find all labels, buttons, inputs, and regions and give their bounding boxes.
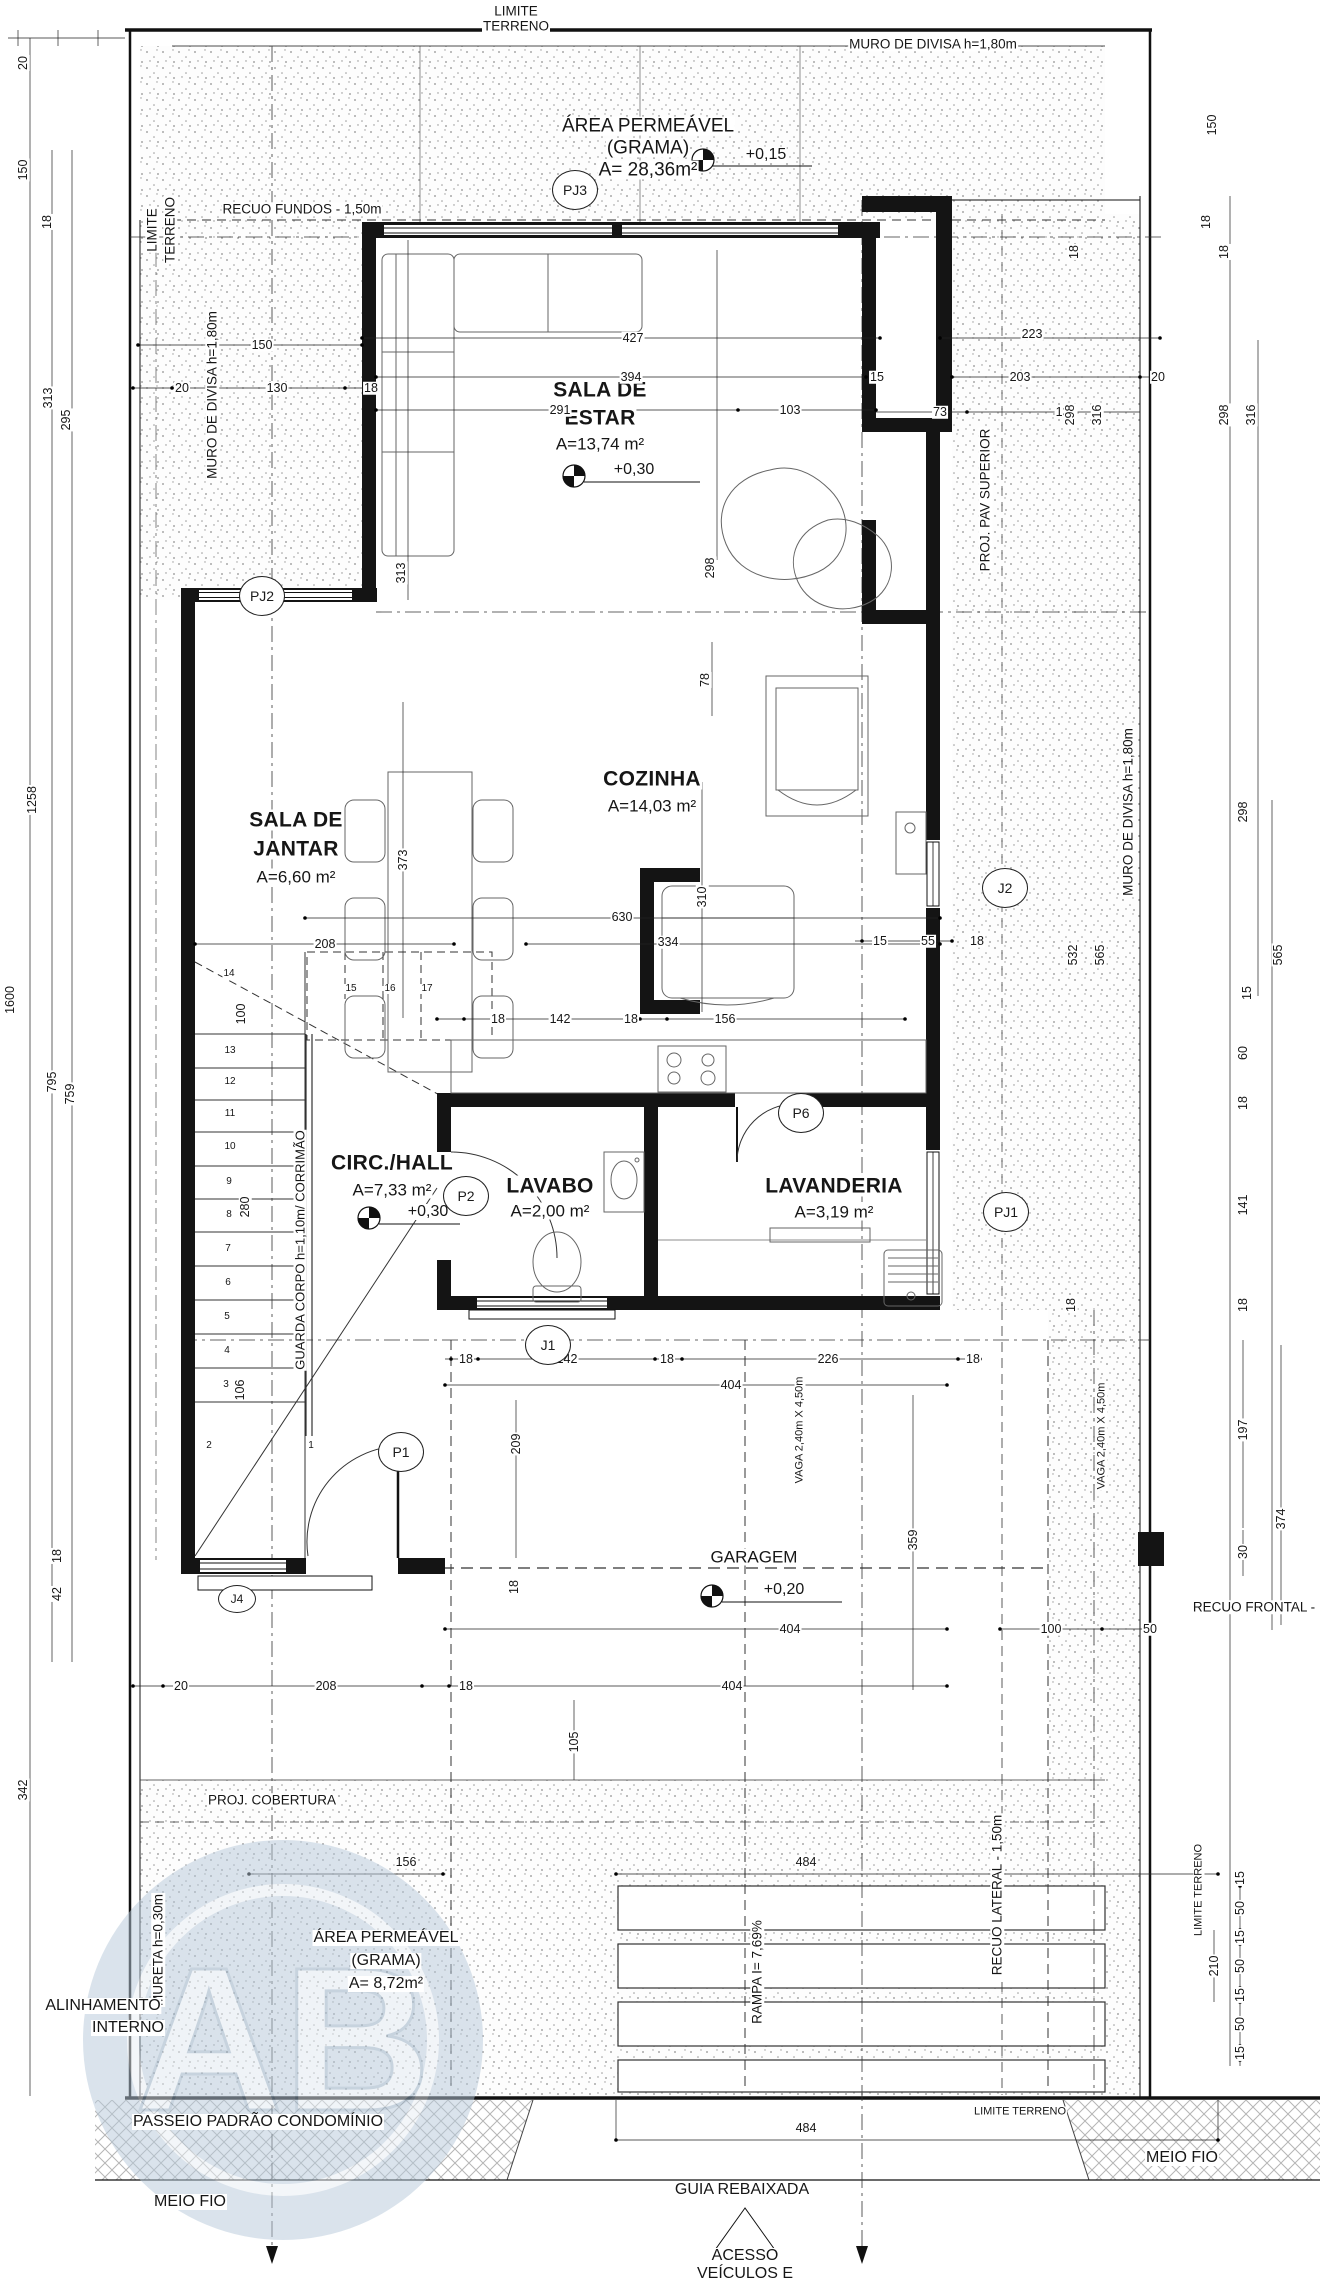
- room-sala-jantar: SALA DE: [248, 810, 344, 831]
- dim-label: 6: [224, 1278, 232, 1288]
- dim-label: 50: [1234, 1958, 1247, 1974]
- dim-label: 150: [1206, 114, 1219, 137]
- dim-label: 359: [907, 1529, 920, 1552]
- ramp-note: RAMPA I= 7,69%: [750, 1919, 764, 2025]
- dim-label: 100: [235, 1003, 248, 1026]
- curb-note: MEIO FIO: [1145, 2150, 1219, 2166]
- opening-tag-j1: J1: [525, 1325, 571, 1365]
- access-note: VEÍCULOS E: [696, 2266, 794, 2282]
- dim-label: 313: [42, 387, 55, 410]
- annotation-label: (GRAMA): [350, 1953, 421, 1969]
- dim-label: 141: [1237, 1194, 1250, 1217]
- dim-label: 150: [17, 159, 30, 182]
- opening-tag-j4: J4: [218, 1585, 256, 1613]
- guardrail-note: GUARDA CORPO h=1,10m/ CORRIMÃO: [294, 1129, 307, 1370]
- level-value: +0,15: [745, 147, 787, 163]
- dim-label: 18: [1068, 244, 1081, 260]
- room-area: A=6,60 m²: [256, 869, 337, 886]
- opening-tag-j2: J2: [982, 868, 1028, 908]
- dim-label: 18: [623, 1013, 639, 1026]
- dim-label: 18: [508, 1579, 521, 1595]
- dim-label: 295: [60, 409, 73, 432]
- room-cozinha: COZINHA: [602, 769, 702, 790]
- room-area: A=2,00 m²: [510, 1203, 591, 1220]
- dim-label: 156: [714, 1013, 737, 1026]
- wall-note: MURO DE DIVISA h=1,80m: [1121, 727, 1135, 897]
- opening-tag-p2: P2: [443, 1176, 489, 1216]
- dim-label: 197: [1237, 1419, 1250, 1442]
- level-value: +0,30: [407, 1204, 449, 1220]
- opening-tag-pj2: PJ2: [239, 576, 285, 616]
- dim-label: 4: [223, 1346, 231, 1356]
- dim-label: 42: [51, 1586, 64, 1602]
- dim-label: 373: [397, 849, 410, 872]
- dim-label: 15: [872, 935, 888, 948]
- dim-label: 50: [1234, 2016, 1247, 2032]
- dim-label: 18: [363, 382, 379, 395]
- dim-label: 208: [315, 1680, 338, 1693]
- dim-label: 100: [1040, 1623, 1063, 1636]
- dim-label: 310: [696, 886, 709, 909]
- opening-tag-p1: P1: [378, 1432, 424, 1472]
- parking-space-note: VAGA 2,40m X 4,50m: [1097, 1382, 1108, 1491]
- dim-label: 73: [932, 406, 948, 419]
- dim-label: 15: [1234, 2045, 1247, 2061]
- level-value: +0,20: [763, 1582, 805, 1598]
- dim-label: 20: [17, 55, 30, 71]
- annotation-label: LIMITE: [145, 207, 159, 253]
- dim-label: 103: [779, 404, 802, 417]
- dim-label: 18: [458, 1353, 474, 1366]
- room-garagem: GARAGEM: [710, 1549, 799, 1566]
- dim-label: 298: [704, 557, 717, 580]
- dim-label: 565: [1094, 944, 1107, 967]
- room-area: A=7,33 m²: [352, 1182, 433, 1199]
- dim-label: 17: [420, 984, 433, 994]
- dim-label: 7: [224, 1244, 232, 1254]
- dim-label: 156: [395, 1856, 418, 1869]
- upper-floor-projection-note: PROJ. PAV SUPERIOR: [978, 428, 992, 573]
- dim-label: 106: [234, 1379, 247, 1402]
- dim-label: 18: [1200, 214, 1213, 230]
- site-limit-top: TERRENO: [482, 19, 550, 33]
- annotation-label: A= 8,72m²: [348, 1976, 424, 1992]
- dim-label: 484: [795, 2122, 818, 2135]
- dim-label: 11: [224, 1109, 236, 1119]
- dim-label: 532: [1067, 944, 1080, 967]
- lowered-curb-note: GUIA REBAIXADA: [674, 2182, 810, 2198]
- dim-label: 60: [1237, 1045, 1250, 1061]
- permeable-area-title: ÁREA PERMEÁVEL: [561, 117, 735, 136]
- dim-label: 210: [1208, 1955, 1221, 1978]
- dim-label: 18: [1237, 1095, 1250, 1111]
- dim-label: 427: [622, 332, 645, 345]
- floor-plan-drawing: AB LIMITETERRENOMURO DE DIVISA h=1,80mÁR…: [0, 0, 1320, 2284]
- dim-label: 298: [1218, 404, 1231, 427]
- dim-label: 20: [173, 1680, 189, 1693]
- opening-tag-p6: P6: [778, 1093, 824, 1133]
- dim-label: 404: [779, 1623, 802, 1636]
- dim-label: 30: [1237, 1544, 1250, 1560]
- dim-label: 18: [490, 1013, 506, 1026]
- setback-note: RECUO LATERAL - 1,50m: [990, 1814, 1004, 1977]
- dim-label: 2: [205, 1441, 213, 1451]
- dim-label: 316: [1091, 404, 1104, 427]
- dim-label: 226: [817, 1353, 840, 1366]
- dim-label: 374: [1275, 1508, 1288, 1531]
- dim-label: 16: [383, 984, 396, 994]
- dim-label: 12: [223, 1077, 236, 1087]
- opening-tag-pj1: PJ1: [983, 1192, 1029, 1232]
- dim-label: 15: [1234, 1929, 1247, 1945]
- low-wall-note: MURETA h=0,30m: [151, 1893, 165, 2007]
- dim-label: 20: [174, 382, 190, 395]
- dim-label: 10: [223, 1142, 236, 1152]
- room-lavabo: LAVABO: [505, 1176, 594, 1197]
- room-area: A=13,74 m²: [555, 436, 645, 453]
- dim-label: 15: [1241, 985, 1254, 1001]
- setback-note: RECUO FUNDOS - 1,50m: [221, 202, 382, 216]
- dim-label: 18: [965, 1353, 981, 1366]
- dim-label: 209: [510, 1433, 523, 1456]
- dim-label: 291: [549, 404, 572, 417]
- dim-label: 150: [251, 339, 274, 352]
- dim-label: 18: [458, 1680, 474, 1693]
- dim-label: 18: [41, 214, 54, 230]
- dim-label: 20: [1150, 371, 1166, 384]
- dim-label: 313: [395, 562, 408, 585]
- setback-note: RECUO FRONTAL -: [1192, 1600, 1316, 1614]
- access-note: ACESSO: [711, 2248, 780, 2264]
- dim-label: 404: [721, 1680, 744, 1693]
- dim-label: 9: [225, 1177, 233, 1187]
- room-circ-hall: CIRC./HALL: [330, 1153, 454, 1174]
- dim-label: 484: [795, 1856, 818, 1869]
- level-value: +0,30: [613, 462, 655, 478]
- plan-labels: LIMITETERRENOMURO DE DIVISA h=1,80mÁREA …: [0, 0, 1320, 2284]
- room-sala-jantar: JANTAR: [252, 839, 339, 860]
- dim-label: 55: [920, 935, 936, 948]
- dim-label: 3: [222, 1380, 230, 1390]
- annotation-label: A= 28,36m²: [598, 161, 699, 180]
- permeable-area-title: ÁREA PERMEÁVEL: [313, 1930, 460, 1946]
- dim-label: 105: [568, 1731, 581, 1754]
- room-area: A=3,19 m²: [794, 1204, 875, 1221]
- dim-label: 18: [1218, 244, 1231, 260]
- alignment-note: ALINHAMENTO: [44, 1998, 161, 2014]
- site-limit-top: LIMITE: [493, 4, 539, 18]
- dim-label: 18: [1237, 1297, 1250, 1313]
- dim-label: 565: [1272, 944, 1285, 967]
- sidewalk-note: PASSEIO PADRÃO CONDOMÍNIO: [132, 2114, 384, 2130]
- dim-label: 342: [17, 1779, 30, 1802]
- dim-label: 18: [659, 1353, 675, 1366]
- dim-label: 18: [1065, 1297, 1078, 1313]
- dim-label: 14: [222, 969, 235, 979]
- dim-label: 1600: [4, 985, 17, 1015]
- dim-label: 13: [223, 1046, 236, 1056]
- dim-label: 8: [225, 1210, 233, 1220]
- room-lavanderia: LAVANDERIA: [764, 1176, 904, 1197]
- dim-label: 203: [1009, 371, 1032, 384]
- roof-projection-note: PROJ. COBERTURA: [207, 1793, 337, 1807]
- dim-label: 316: [1245, 404, 1258, 427]
- dim-label: 795: [46, 1071, 59, 1094]
- dim-label: 18: [51, 1548, 64, 1564]
- dim-label: 208: [314, 938, 337, 951]
- dim-label: 334: [657, 936, 680, 949]
- dim-label: 130: [266, 382, 289, 395]
- dim-label: 142: [549, 1013, 572, 1026]
- parking-space-note: VAGA 2,40m X 4,50m: [795, 1376, 806, 1485]
- dim-label: 50: [1142, 1623, 1158, 1636]
- dim-label: 298: [1064, 404, 1077, 427]
- dim-label: 394: [620, 371, 643, 384]
- room-area: A=14,03 m²: [607, 798, 697, 815]
- dim-label: 223: [1021, 328, 1044, 341]
- dim-label: 50: [1234, 1900, 1247, 1916]
- dim-label: 15: [1234, 1987, 1247, 2003]
- alignment-note: INTERNO: [91, 2020, 165, 2036]
- dim-label: 1258: [26, 785, 39, 815]
- dim-label: 78: [699, 672, 712, 688]
- dim-label: 1: [307, 1441, 315, 1451]
- site-limit-note: LIMITE TERRENO: [1194, 1843, 1205, 1937]
- opening-tag-pj3: PJ3: [552, 170, 598, 210]
- curb-note: MEIO FIO: [153, 2194, 227, 2210]
- dim-label: 5: [223, 1312, 231, 1322]
- annotation-label: (GRAMA): [606, 139, 690, 158]
- wall-note: MURO DE DIVISA h=1,80m: [205, 310, 219, 480]
- dim-label: 630: [611, 911, 634, 924]
- dim-label: 280: [239, 1196, 252, 1219]
- dim-label: 759: [64, 1083, 77, 1106]
- dim-label: 15: [1234, 1870, 1247, 1886]
- dim-label: 18: [969, 935, 985, 948]
- dim-label: 15: [869, 371, 885, 384]
- room-sala-estar: ESTAR: [563, 408, 636, 429]
- site-limit-note: LIMITE TERRENO: [973, 2107, 1067, 2118]
- dim-label: 298: [1237, 801, 1250, 824]
- dim-label: 15: [344, 984, 357, 994]
- wall-note: MURO DE DIVISA h=1,80m: [848, 37, 1018, 51]
- dim-label: 404: [720, 1379, 743, 1392]
- annotation-label: TERRENO: [163, 196, 177, 264]
